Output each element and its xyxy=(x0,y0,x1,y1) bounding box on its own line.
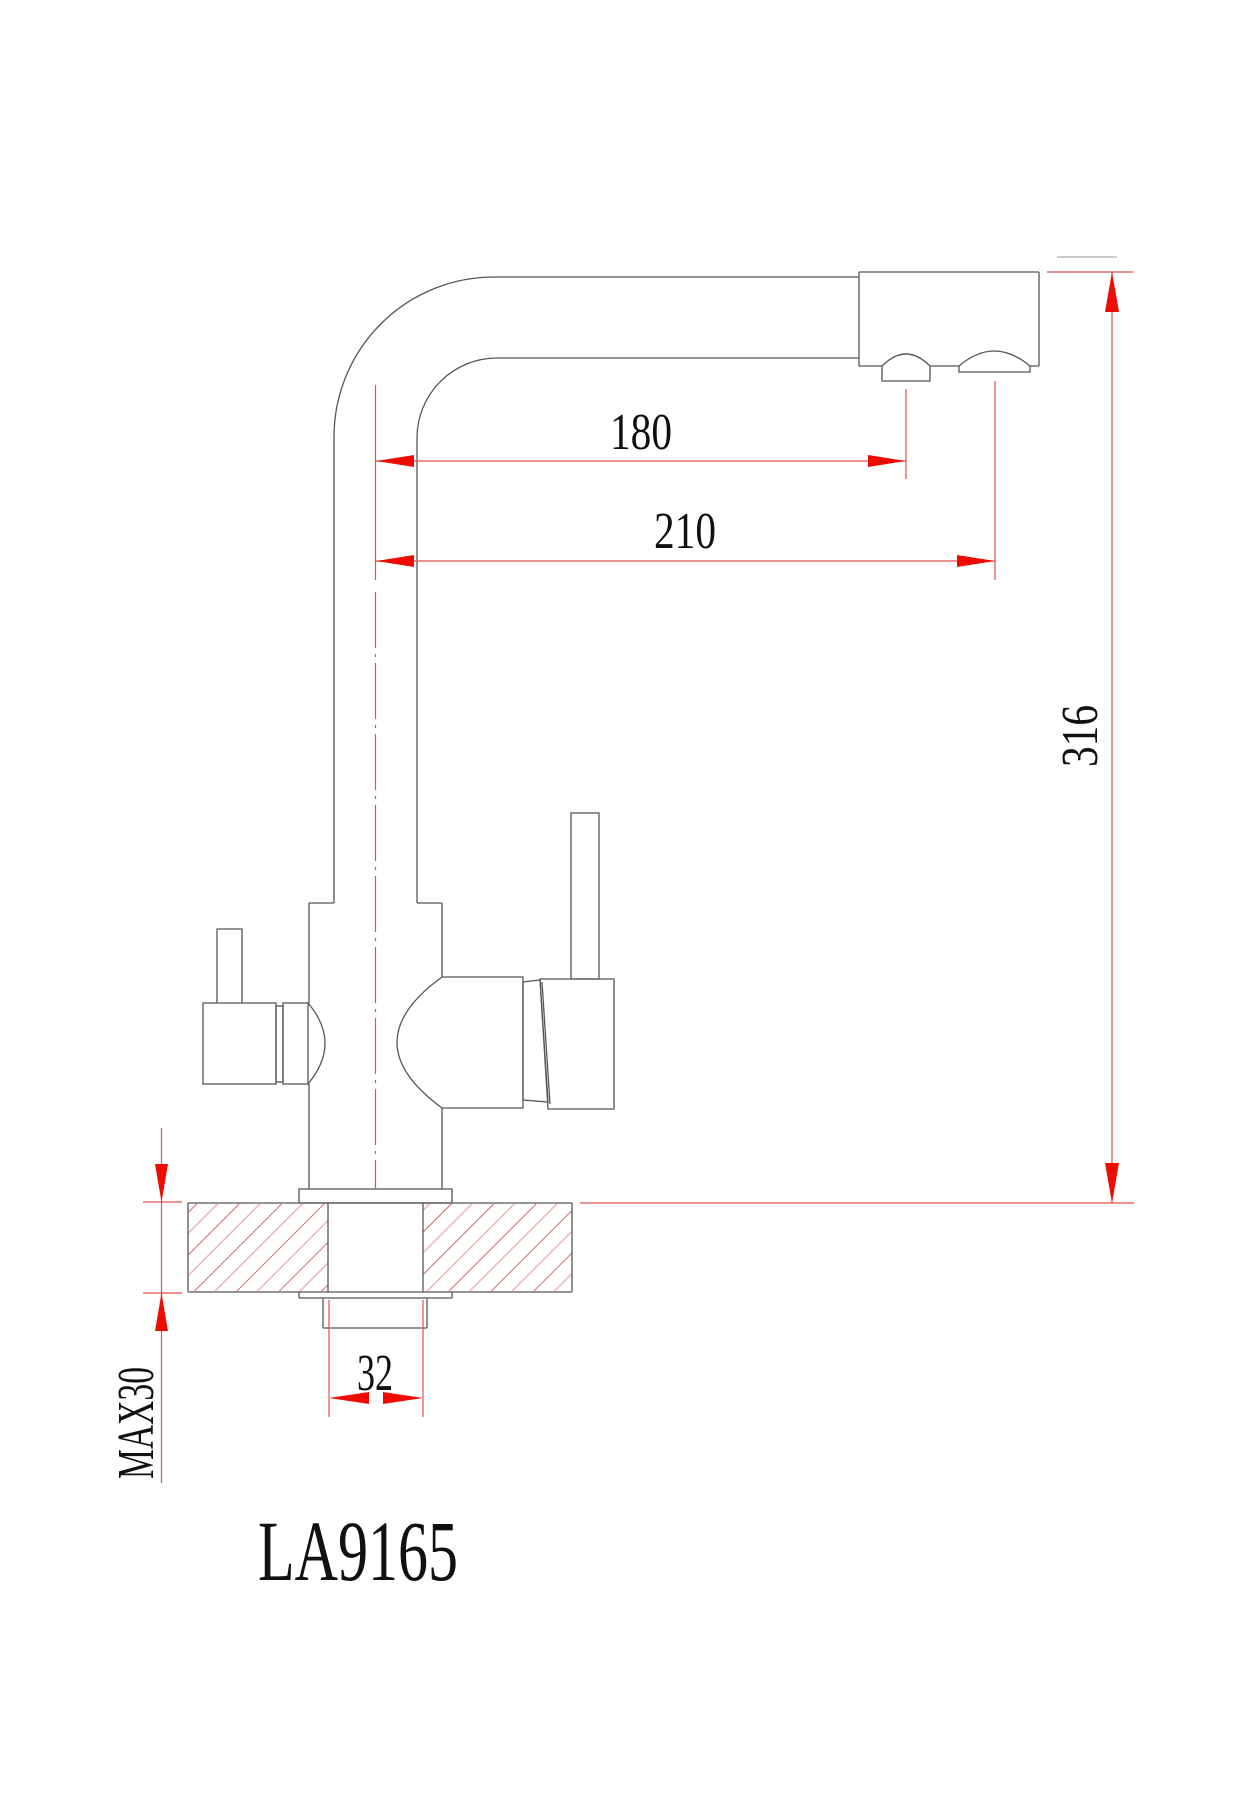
dim-210-label: 210 xyxy=(654,503,716,560)
faucet-dimension-drawing: 180 210 316 32 MAX30 LA9165 xyxy=(0,0,1255,1800)
faucet-body xyxy=(308,903,523,1189)
dim-316-arrow-up xyxy=(1105,272,1119,312)
right-lever-body xyxy=(540,979,614,1109)
dim-316-arrow-down xyxy=(1105,1163,1119,1203)
spout-head xyxy=(859,272,1039,381)
aerator-large-base xyxy=(959,366,1030,372)
countertop-hatch-right xyxy=(423,1204,572,1291)
base-flange xyxy=(299,1189,452,1203)
dim-180-label: 180 xyxy=(610,404,672,461)
countertop-section-hatch xyxy=(188,1204,572,1291)
washer xyxy=(299,1292,452,1298)
mounting-nut xyxy=(323,1298,427,1328)
aerator-small-base xyxy=(882,366,930,381)
left-handle xyxy=(203,929,308,1084)
dim-316-label: 316 xyxy=(1052,705,1109,767)
countertop-hatch-left xyxy=(188,1204,328,1291)
aerator-small-dome xyxy=(882,354,930,366)
technical-drawing-page: 180 210 316 32 MAX30 LA9165 xyxy=(0,0,1255,1800)
dim-210-arrow-left xyxy=(376,555,414,567)
spout-outer-curve xyxy=(334,277,859,903)
dim-max30-label: MAX30 xyxy=(108,1367,165,1479)
left-valve-dome xyxy=(308,1003,325,1084)
dim-max30-arrow-up xyxy=(155,1293,168,1331)
dim-max30-arrow-down xyxy=(155,1164,168,1202)
dim-32-label: 32 xyxy=(357,1345,393,1402)
left-handle-collar xyxy=(276,1006,283,1082)
dim-max30-ticks xyxy=(143,1202,182,1293)
left-handle-coupler xyxy=(283,1003,308,1084)
dim-180-arrow-left xyxy=(376,455,414,467)
left-handle-body xyxy=(203,1003,276,1084)
model-number-label: LA9165 xyxy=(258,1503,458,1599)
aerator-large-dome xyxy=(959,351,1030,366)
right-lever-stem xyxy=(571,813,599,979)
dim-180-arrow-right xyxy=(868,455,906,467)
left-handle-stem xyxy=(217,929,242,1003)
dim-210-arrow-right xyxy=(957,555,995,567)
right-valve-housing xyxy=(442,977,523,1108)
right-lever xyxy=(523,813,614,1109)
shank-sides xyxy=(328,1203,423,1292)
right-valve-dome xyxy=(397,977,442,1108)
